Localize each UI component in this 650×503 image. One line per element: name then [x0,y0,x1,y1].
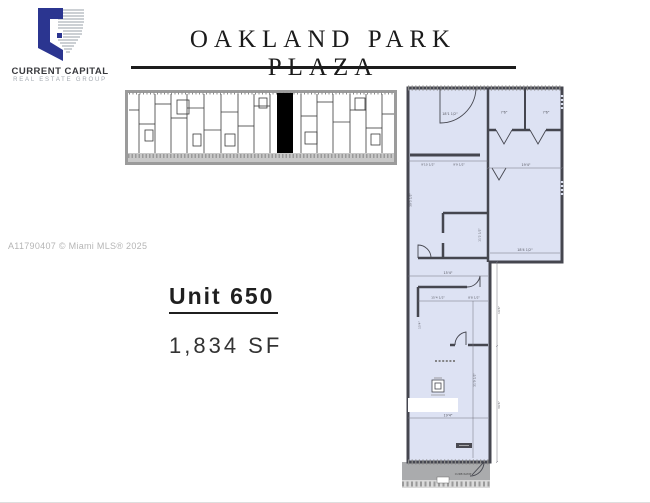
unit-floorplan: CURB RAMP [400,85,650,502]
dim-right-room-top: 19'4" [522,163,531,167]
dim-hall-right: 9'9 1/2" [453,163,465,167]
dim-lower-height: 31'0 1/2" [473,373,477,387]
curb-label: CURB RAMP [455,472,472,476]
dim-top-right-room-1: 7'6" [501,111,508,115]
mls-watermark: A11790407 © Miami MLS® 2025 [8,241,147,251]
dim-hall-left: 9'10 1/2" [421,163,435,167]
unit-area: 1,834 SF [169,333,282,359]
dim-left-height-mid: 15'4" [418,320,422,329]
dim-right-height-lower: 36'6" [497,400,501,409]
dim-top-left-room: 18'1 1/2" [442,112,458,116]
page-title: OAKLAND PARK PLAZA [130,26,516,82]
dim-left-height-upper: 30'3 1/2" [409,193,413,207]
title-divider [131,66,516,69]
dim-right-room-bottom: 18'4 1/2" [517,248,533,252]
dim-lower-width-1: 15'4" [444,271,453,275]
flyer-page: CURRENT CAPITAL REAL ESTATE GROUP OAKLAN… [0,0,650,503]
overview-plan [125,90,397,170]
current-capital-logo-icon [30,6,88,64]
dim-top-right-room-2: 7'6" [543,111,550,115]
blank-label-box [408,398,458,412]
dim-bottom-width: 19'4" [444,414,453,418]
door-mat [437,477,449,483]
unit-number: Unit 650 [169,283,278,314]
fixture-icon [432,380,444,392]
overview-highlighted-unit [277,93,293,153]
dim-middle-room-height: 11'2 1/2" [478,228,482,242]
dim-right-height-upper: 16'6" [497,305,501,314]
brand-name: CURRENT CAPITAL [4,66,116,77]
dim-lower-width-3: 8'8 1/2" [468,296,480,300]
dim-lower-width-2: 15'4 1/2" [431,296,445,300]
brand-subtitle: REAL ESTATE GROUP [4,77,116,83]
